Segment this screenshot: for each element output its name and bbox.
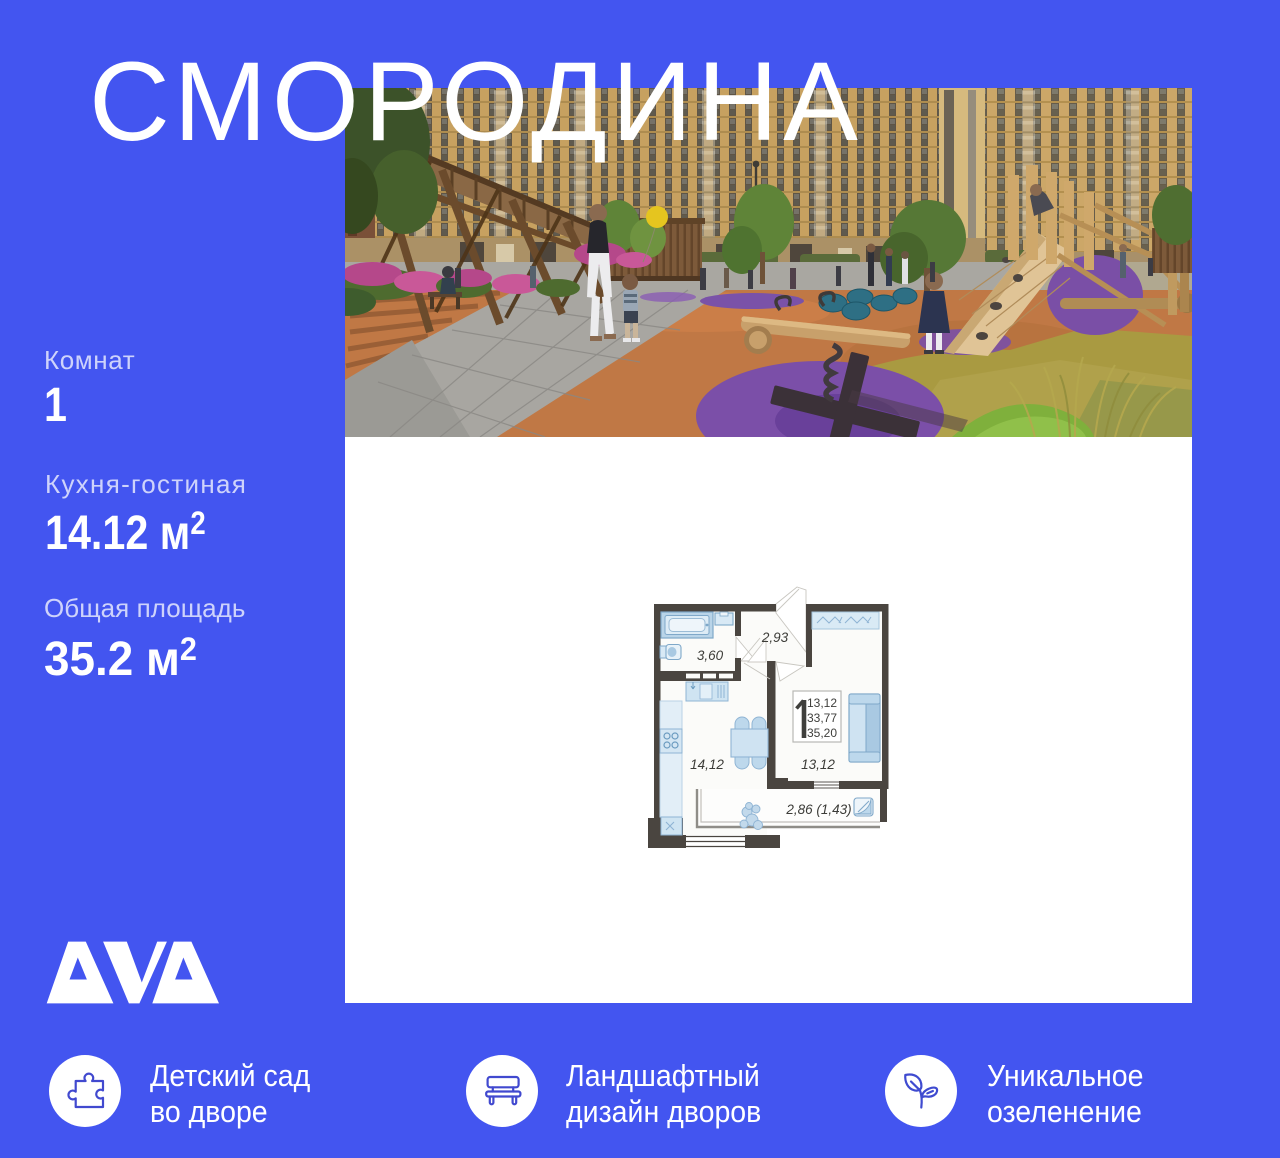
svg-text:33,77: 33,77 [807,711,837,725]
svg-text:2,93: 2,93 [761,630,789,645]
svg-text:35,20: 35,20 [807,726,837,740]
svg-text:3,60: 3,60 [697,648,724,663]
svg-text:13,12: 13,12 [801,757,835,772]
svg-text:14,12: 14,12 [690,757,724,772]
svg-text:2,86 (1,43): 2,86 (1,43) [785,802,851,817]
svg-text:13,12: 13,12 [807,696,837,710]
